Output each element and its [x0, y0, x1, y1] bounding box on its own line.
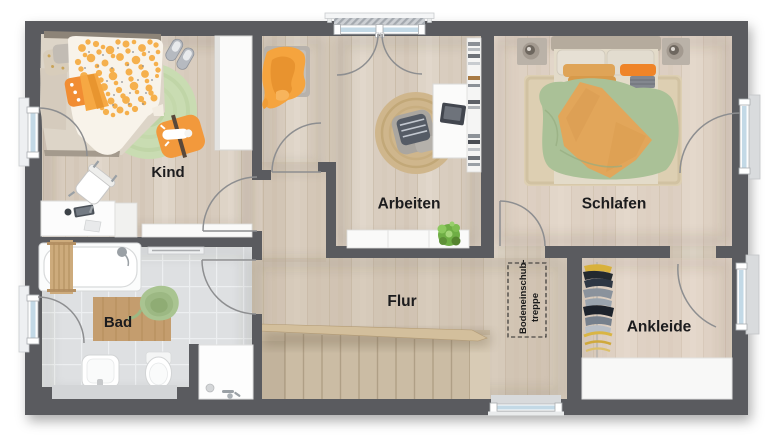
svg-text:Bodeneinschub-: Bodeneinschub-	[518, 260, 529, 334]
svg-text:Schlafen: Schlafen	[582, 196, 647, 213]
svg-text:Arbeiten: Arbeiten	[378, 196, 441, 213]
svg-text:Ankleide: Ankleide	[627, 319, 692, 336]
svg-text:Kind: Kind	[151, 164, 184, 181]
svg-text:treppe: treppe	[530, 293, 541, 322]
svg-text:Flur: Flur	[387, 293, 416, 310]
svg-text:Bad: Bad	[104, 314, 132, 331]
